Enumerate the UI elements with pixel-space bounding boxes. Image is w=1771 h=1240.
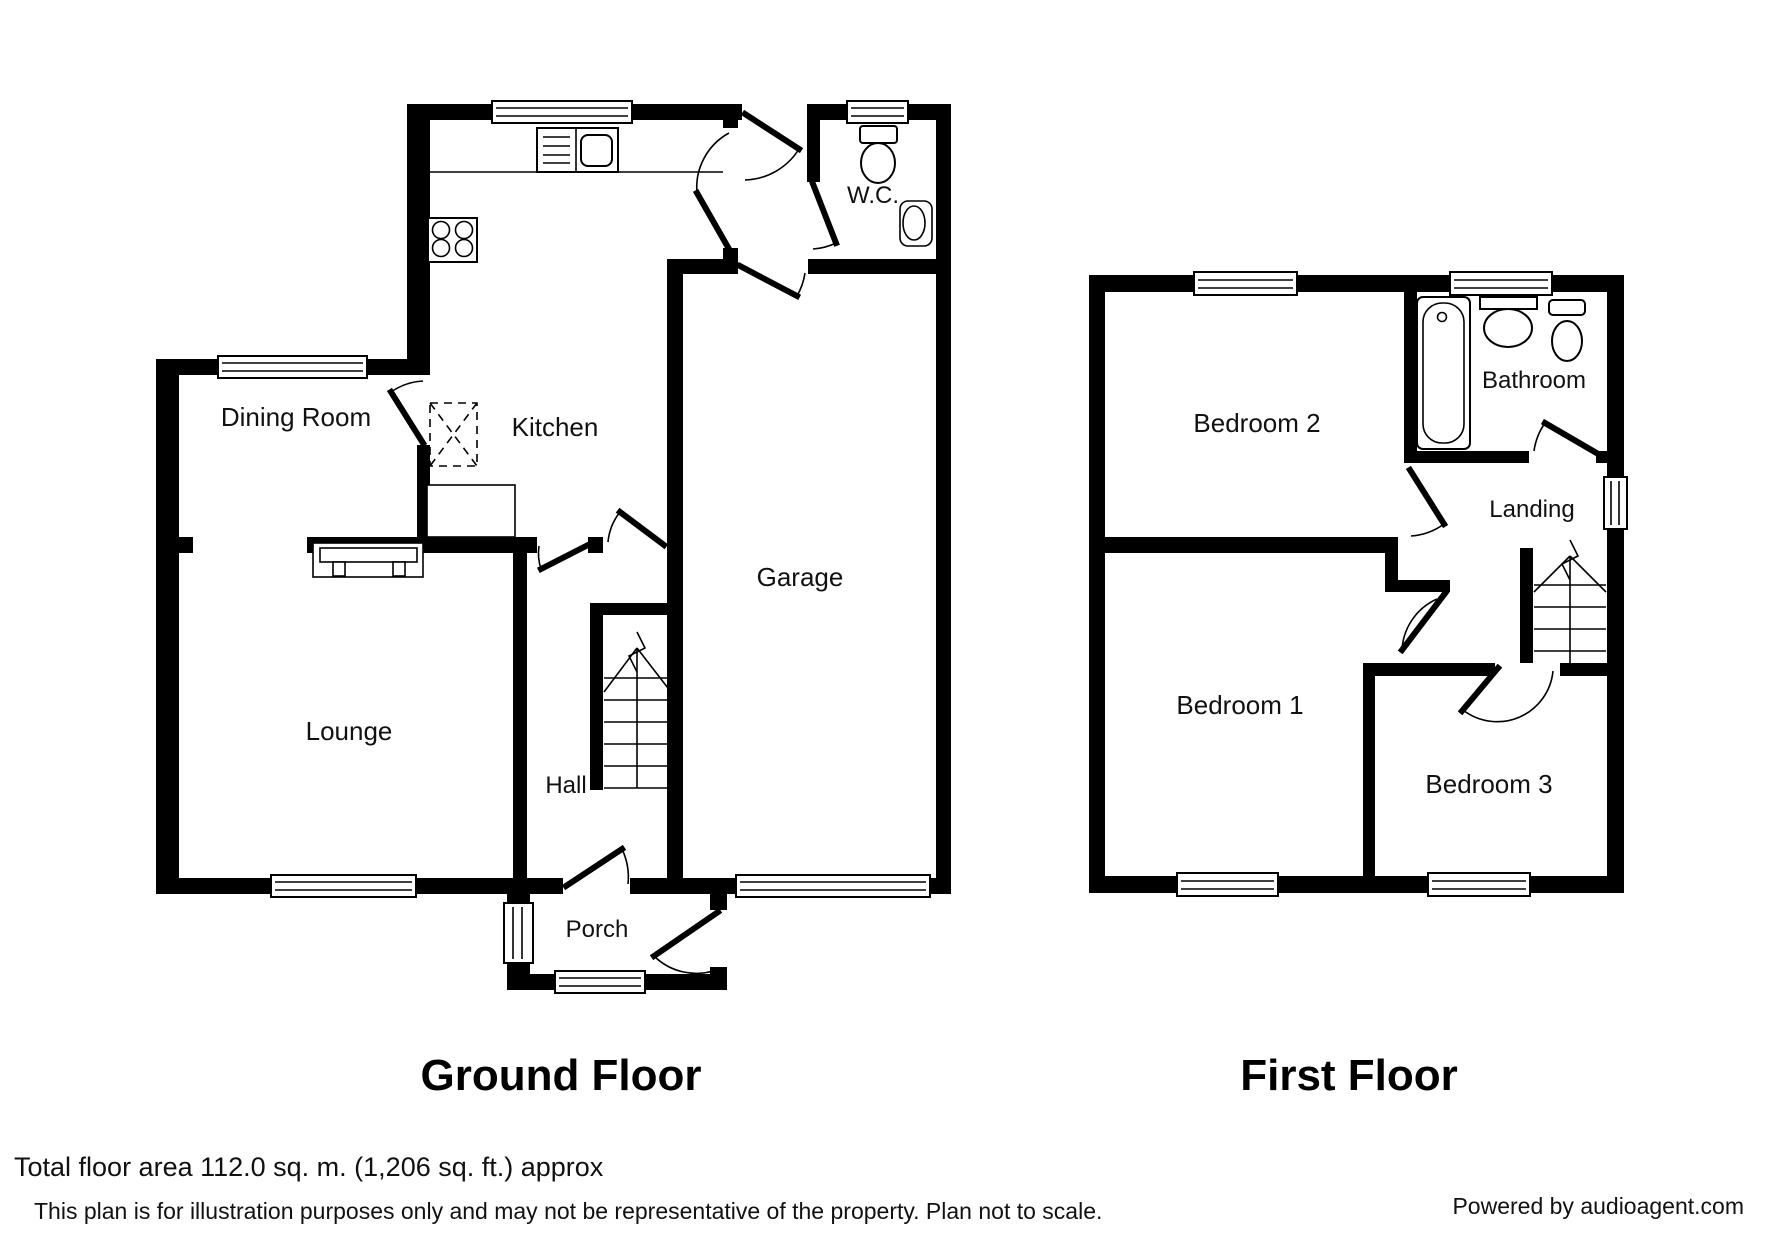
bathroom-basin: [1480, 297, 1537, 347]
bedroom2-window: [1194, 272, 1297, 295]
wc-toilet: [860, 126, 897, 183]
kitchen-window: [492, 101, 632, 123]
bedroom1-window: [1177, 873, 1278, 896]
floorplan-svg: Kitchen Dining Room Lounge Garage Hall P…: [0, 0, 1771, 1240]
garage-window: [736, 875, 930, 897]
bathroom-toilet: [1549, 300, 1585, 361]
bathroom-window: [1450, 272, 1552, 295]
floorplan-page: Kitchen Dining Room Lounge Garage Hall P…: [0, 0, 1771, 1240]
room-label-bedroom2: Bedroom 2: [1193, 408, 1320, 438]
room-label-hall: Hall: [545, 772, 586, 799]
room-label-landing: Landing: [1489, 496, 1574, 523]
ground-floor-title: Ground Floor: [420, 1051, 701, 1100]
porch-entrance-door: [654, 912, 718, 973]
first-floor-stairs: [1534, 540, 1606, 663]
room-label-bathroom: Bathroom: [1482, 367, 1586, 394]
ground-floor-stairs: [604, 632, 671, 788]
room-label-bedroom1: Bedroom 1: [1176, 690, 1303, 720]
garage-lobby-door: [740, 266, 805, 296]
wc-window: [847, 101, 908, 123]
kitchen-hall-door: [538, 545, 588, 569]
room-label-garage: Garage: [757, 562, 844, 592]
ground-floor-plan: Kitchen Dining Room Lounge Garage Hall P…: [156, 101, 951, 993]
kitchen-hob: [428, 218, 477, 262]
porch-front-window: [555, 971, 645, 993]
room-label-porch: Porch: [566, 916, 629, 943]
entrance-door: [745, 114, 799, 180]
bathtub: [1417, 297, 1470, 449]
kitchen-sink: [537, 128, 618, 172]
dining-kitchen-door: [391, 381, 423, 443]
credit-text: Powered by audioagent.com: [1452, 1193, 1744, 1219]
room-label-wc: W.C.: [847, 182, 899, 209]
dining-room-window: [218, 356, 367, 378]
kitchen-appliance-dashed: [430, 403, 477, 466]
first-floor-title: First Floor: [1240, 1051, 1458, 1100]
wc-basin: [900, 201, 932, 246]
footer: Total floor area 112.0 sq. m. (1,206 sq.…: [14, 1152, 1744, 1224]
bathroom-door: [1534, 423, 1600, 455]
room-label-lounge: Lounge: [306, 716, 393, 746]
kitchen-lobby-door: [697, 133, 729, 249]
porch-side-window: [504, 903, 533, 963]
lounge-window: [271, 875, 416, 897]
landing-window: [1604, 477, 1627, 529]
first-floor-plan: Bedroom 2 Bedroom 1 Bedroom 3 Bathroom L…: [1089, 272, 1627, 896]
lounge-fireplace: [313, 543, 423, 577]
bedroom1-door: [1402, 592, 1446, 650]
porch-hall-door: [566, 849, 628, 886]
bedroom3-door: [1462, 668, 1553, 722]
total-floor-area-text: Total floor area 112.0 sq. m. (1,206 sq.…: [14, 1152, 604, 1182]
bedroom2-door: [1410, 470, 1444, 536]
wc-door: [813, 184, 836, 249]
kitchen-unit: [427, 485, 515, 537]
room-label-kitchen: Kitchen: [512, 412, 599, 442]
bedroom3-window: [1428, 873, 1530, 896]
disclaimer-text: This plan is for illustration purposes o…: [34, 1198, 1102, 1224]
room-label-dining-room: Dining Room: [221, 402, 371, 432]
understairs-cupboard-door: [608, 512, 664, 545]
room-label-bedroom3: Bedroom 3: [1425, 769, 1552, 799]
